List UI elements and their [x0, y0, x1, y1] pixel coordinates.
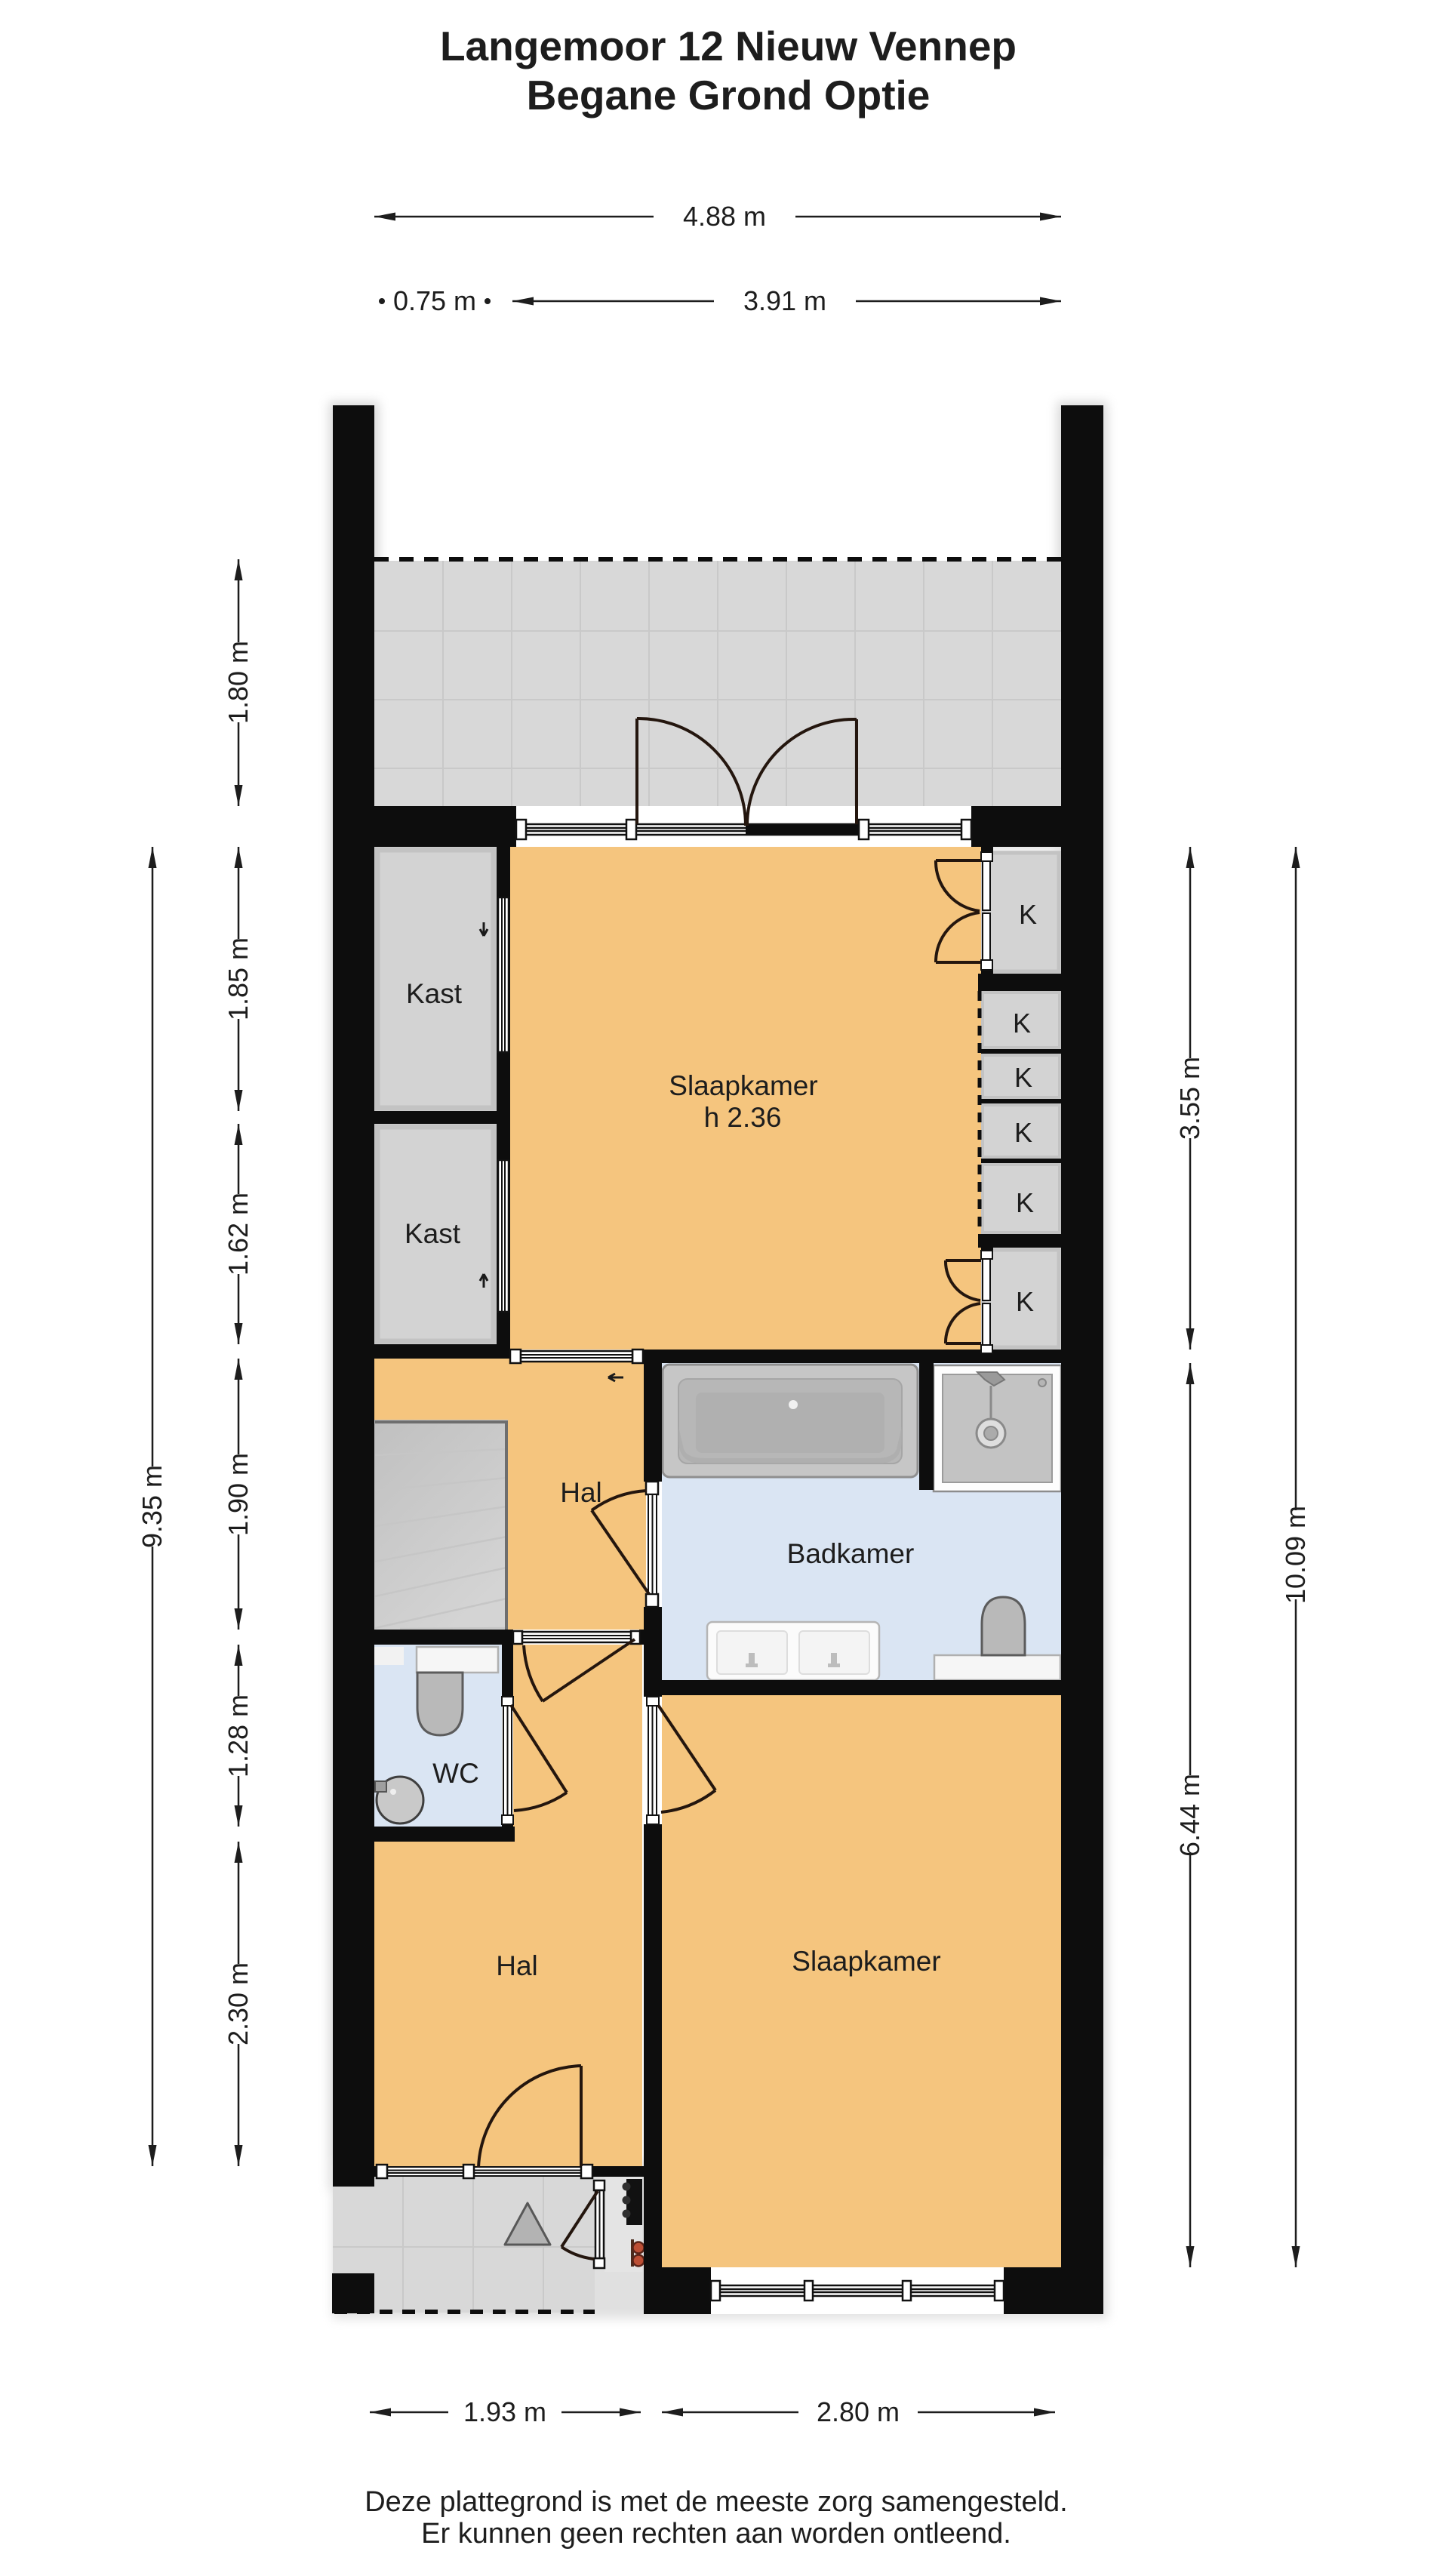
svg-text:Hal: Hal [496, 1950, 538, 1981]
svg-text:6.44 m: 6.44 m [1174, 1774, 1205, 1857]
svg-text:10.09 m: 10.09 m [1280, 1506, 1311, 1604]
svg-text:WC: WC [432, 1758, 479, 1789]
svg-text:0.75 m: 0.75 m [393, 285, 476, 316]
svg-text:Slaapkamer: Slaapkamer [669, 1070, 817, 1101]
svg-text:Kast: Kast [406, 978, 463, 1009]
svg-text:K: K [1019, 899, 1037, 930]
svg-text:Langemoor 12 Nieuw Vennep: Langemoor 12 Nieuw Vennep [440, 23, 1017, 69]
svg-text:K: K [1016, 1286, 1034, 1317]
svg-text:1.80 m: 1.80 m [223, 641, 254, 724]
svg-text:Slaapkamer: Slaapkamer [792, 1946, 940, 1977]
svg-text:Er kunnen geen rechten aan wor: Er kunnen geen rechten aan worden ontlee… [421, 2518, 1011, 2550]
svg-text:1.28 m: 1.28 m [223, 1694, 254, 1777]
svg-text:Kast: Kast [405, 1218, 461, 1249]
svg-text:K: K [1014, 1062, 1032, 1093]
svg-text:4.88 m: 4.88 m [683, 201, 766, 232]
svg-text:9.35 m: 9.35 m [137, 1465, 168, 1548]
svg-text:2.30 m: 2.30 m [223, 1962, 254, 2045]
svg-text:K: K [1013, 1008, 1031, 1039]
svg-text:Badkamer: Badkamer [787, 1538, 915, 1569]
svg-text:Deze plattegrond is met de mee: Deze plattegrond is met de meeste zorg s… [365, 2486, 1068, 2518]
svg-text:1.62 m: 1.62 m [223, 1193, 254, 1276]
svg-text:1.85 m: 1.85 m [223, 937, 254, 1020]
svg-text:K: K [1016, 1187, 1034, 1218]
svg-text:2.80 m: 2.80 m [817, 2396, 900, 2427]
svg-text:Begane Grond Optie: Begane Grond Optie [527, 72, 931, 118]
svg-text:3.55 m: 3.55 m [1174, 1057, 1205, 1140]
svg-text:K: K [1014, 1117, 1032, 1148]
svg-text:3.91 m: 3.91 m [743, 285, 826, 316]
svg-text:Hal: Hal [560, 1477, 602, 1508]
svg-text:1.90 m: 1.90 m [223, 1453, 254, 1536]
svg-text:1.93 m: 1.93 m [463, 2396, 546, 2427]
svg-text:h 2.36: h 2.36 [704, 1102, 782, 1133]
